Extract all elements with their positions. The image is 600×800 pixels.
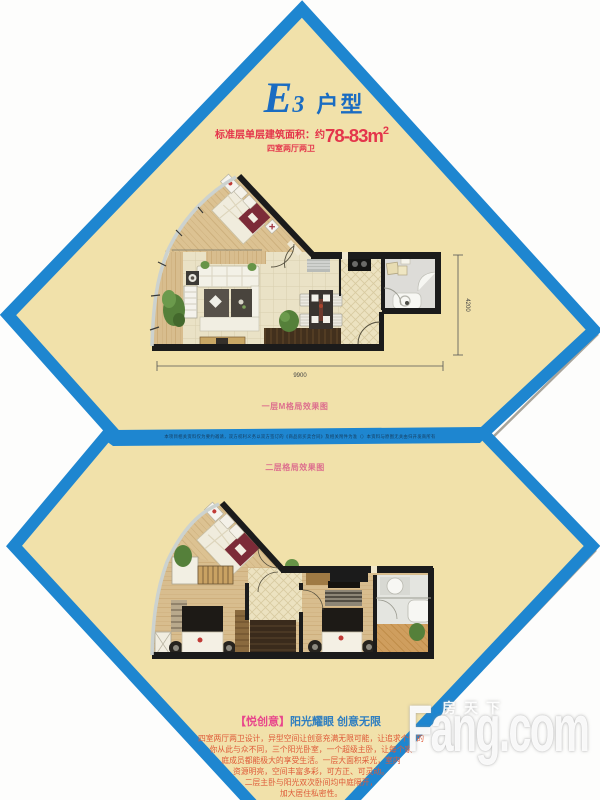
svg-text:4200: 4200 bbox=[464, 298, 470, 312]
svg-text:9900: 9900 bbox=[293, 373, 307, 379]
